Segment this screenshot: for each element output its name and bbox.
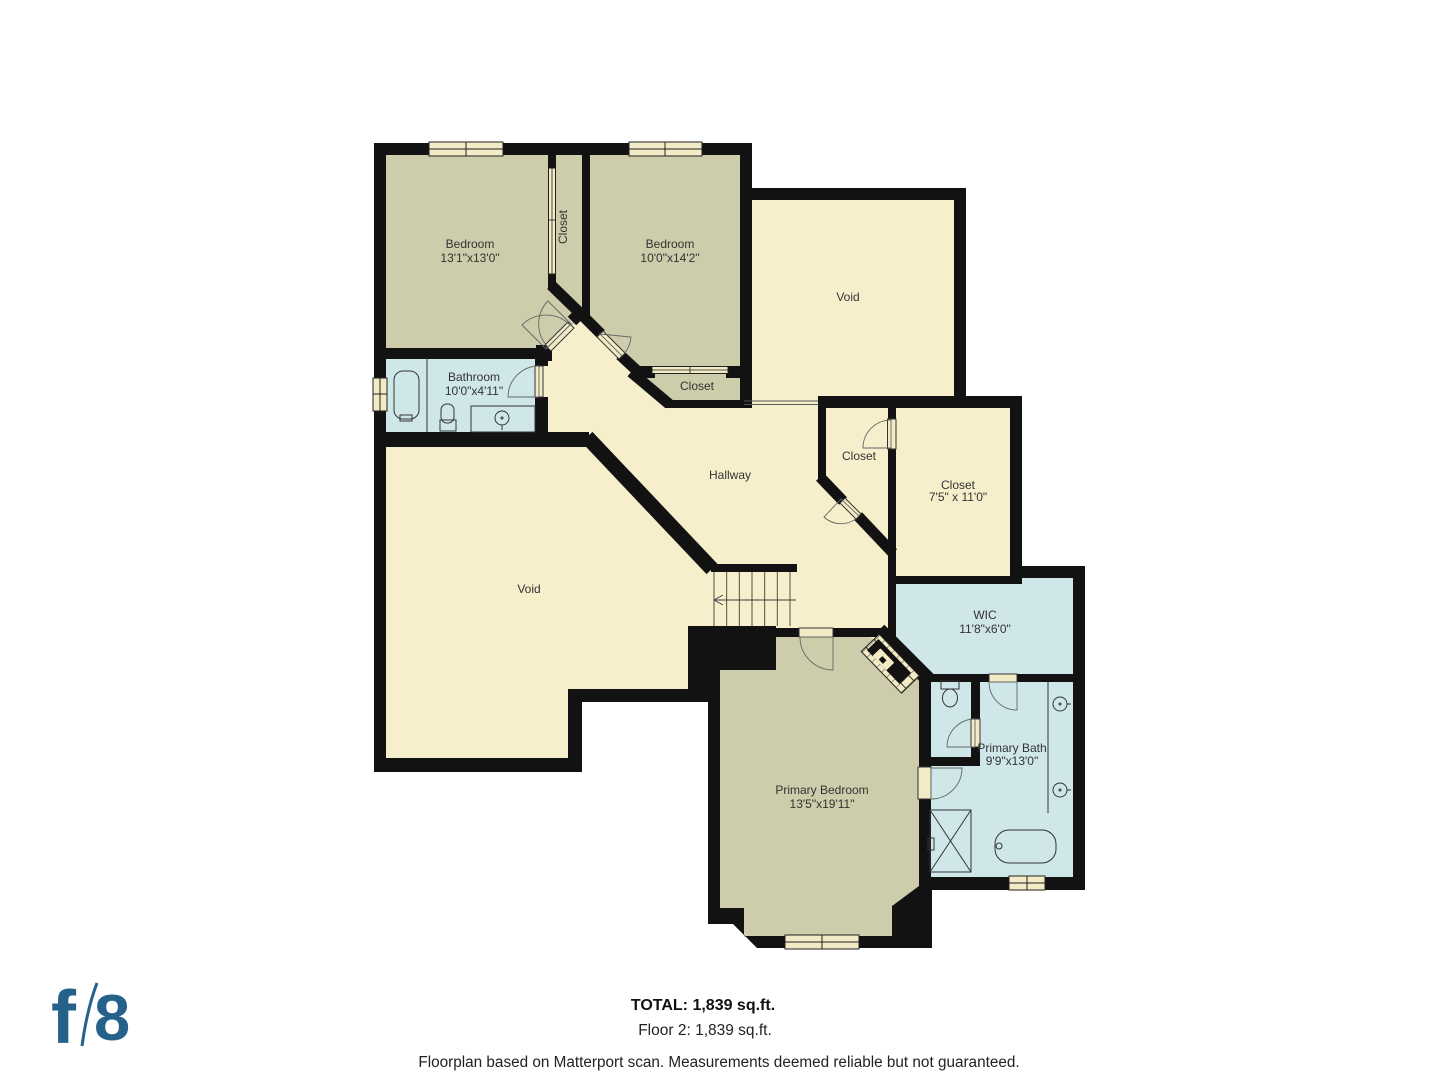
svg-text:Void: Void: [517, 582, 540, 596]
svg-text:Bathroom: Bathroom: [448, 370, 500, 384]
svg-text:13'5"x19'11": 13'5"x19'11": [790, 797, 855, 811]
svg-text:Floorplan based on Matterport: Floorplan based on Matterport scan. Meas…: [418, 1054, 1019, 1071]
svg-text:Primary Bedroom: Primary Bedroom: [775, 783, 868, 797]
svg-text:8: 8: [94, 981, 130, 1054]
svg-text:f: f: [51, 975, 77, 1059]
svg-text:Primary Bath: Primary Bath: [977, 741, 1046, 755]
svg-text:9'9"x13'0": 9'9"x13'0": [986, 754, 1038, 768]
svg-text:TOTAL: 1,839 sq.ft.: TOTAL: 1,839 sq.ft.: [631, 997, 775, 1014]
svg-text:Bedroom: Bedroom: [646, 237, 695, 251]
svg-text:Closet: Closet: [842, 449, 877, 463]
svg-text:Floor 2: 1,839 sq.ft.: Floor 2: 1,839 sq.ft.: [638, 1022, 772, 1039]
svg-text:Hallway: Hallway: [709, 468, 751, 482]
svg-text:Bedroom: Bedroom: [446, 237, 495, 251]
svg-text:10'0"x14'2": 10'0"x14'2": [640, 251, 699, 265]
svg-text:7'5" x 11'0": 7'5" x 11'0": [929, 490, 987, 504]
svg-text:Void: Void: [836, 290, 859, 304]
svg-text:13'1"x13'0": 13'1"x13'0": [440, 251, 499, 265]
svg-text:10'0"x4'11": 10'0"x4'11": [445, 384, 503, 398]
svg-text:11'8"x6'0": 11'8"x6'0": [959, 622, 1011, 636]
svg-text:WIC: WIC: [973, 608, 997, 622]
svg-text:Closet: Closet: [556, 209, 570, 244]
svg-text:Closet: Closet: [680, 379, 715, 393]
